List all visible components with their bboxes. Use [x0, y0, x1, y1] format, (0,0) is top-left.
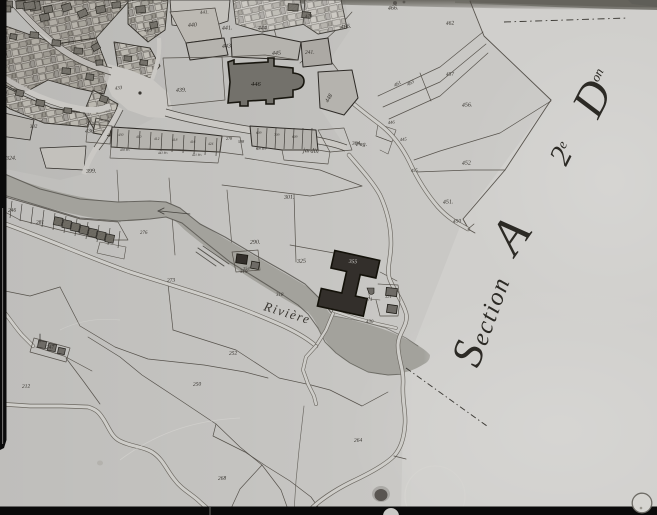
svg-text:443: 443	[222, 43, 231, 50]
svg-text:441.: 441.	[222, 24, 233, 32]
svg-text:301.: 301.	[283, 195, 295, 201]
svg-text:409: 409	[144, 26, 153, 34]
svg-text:474: 474	[305, 14, 313, 20]
svg-text:440: 440	[188, 21, 197, 29]
svg-text:709: 709	[274, 133, 280, 137]
svg-text:241.: 241.	[305, 49, 315, 56]
svg-text:212: 212	[22, 384, 31, 390]
svg-text:jardin: jardin	[302, 147, 319, 155]
svg-text:290.: 290.	[250, 240, 261, 246]
svg-text:250: 250	[193, 382, 202, 388]
svg-text:w: w	[98, 20, 101, 25]
svg-text:444: 444	[258, 24, 267, 32]
svg-text:273: 273	[167, 278, 176, 284]
svg-text:609 bis: 609 bis	[256, 147, 266, 151]
svg-text:466.: 466.	[388, 4, 399, 12]
svg-text:456.: 456.	[462, 101, 473, 109]
svg-text:450: 450	[453, 217, 462, 225]
svg-text:598: 598	[238, 139, 245, 144]
svg-text:410: 410	[136, 135, 142, 139]
svg-text:Pag.: Pag.	[355, 142, 367, 148]
svg-text:247: 247	[46, 344, 55, 351]
svg-text:436: 436	[85, 128, 94, 135]
svg-text:430: 430	[118, 133, 124, 137]
svg-text:321: 321	[385, 294, 392, 299]
svg-text:445: 445	[400, 136, 408, 142]
svg-text:421 bis: 421 bis	[192, 153, 202, 157]
svg-text:446: 446	[251, 81, 262, 88]
svg-text:332: 332	[30, 124, 38, 130]
svg-text:354: 354	[243, 266, 251, 271]
svg-text:355: 355	[348, 259, 358, 266]
svg-text:430: 430	[366, 320, 374, 325]
svg-text:281: 281	[36, 220, 45, 226]
svg-text:k: k	[62, 41, 64, 46]
svg-text:412: 412	[154, 137, 160, 141]
svg-text:276: 276	[140, 231, 148, 236]
svg-text:457: 457	[446, 70, 455, 78]
svg-text:443 bis: 443 bis	[158, 151, 168, 155]
svg-text:466.: 466.	[340, 23, 351, 31]
svg-text:609: 609	[256, 131, 262, 135]
svg-text:771: 771	[365, 298, 373, 303]
svg-text:445: 445	[272, 50, 281, 57]
svg-text:609: 609	[292, 135, 298, 139]
svg-text:418: 418	[172, 138, 178, 142]
svg-text:252: 252	[229, 351, 238, 357]
svg-text:438 bis: 438 bis	[120, 148, 130, 152]
svg-text:246: 246	[8, 207, 17, 214]
svg-text:439.: 439.	[176, 87, 187, 94]
svg-text:278: 278	[226, 136, 233, 141]
svg-text:446: 446	[388, 119, 396, 125]
svg-text:462: 462	[446, 19, 455, 27]
svg-text:264: 264	[354, 437, 363, 444]
svg-text:324.: 324.	[5, 155, 17, 162]
svg-text:451.: 451.	[443, 198, 454, 206]
svg-text:452: 452	[462, 159, 471, 167]
svg-text:455: 455	[411, 167, 419, 173]
svg-text:318: 318	[276, 293, 284, 298]
svg-text:424: 424	[208, 142, 214, 146]
svg-text:325: 325	[296, 259, 306, 265]
svg-text:268: 268	[218, 476, 227, 482]
svg-text:399.: 399.	[85, 169, 97, 175]
svg-text:441.: 441.	[200, 10, 209, 16]
svg-text:416: 416	[190, 140, 196, 144]
